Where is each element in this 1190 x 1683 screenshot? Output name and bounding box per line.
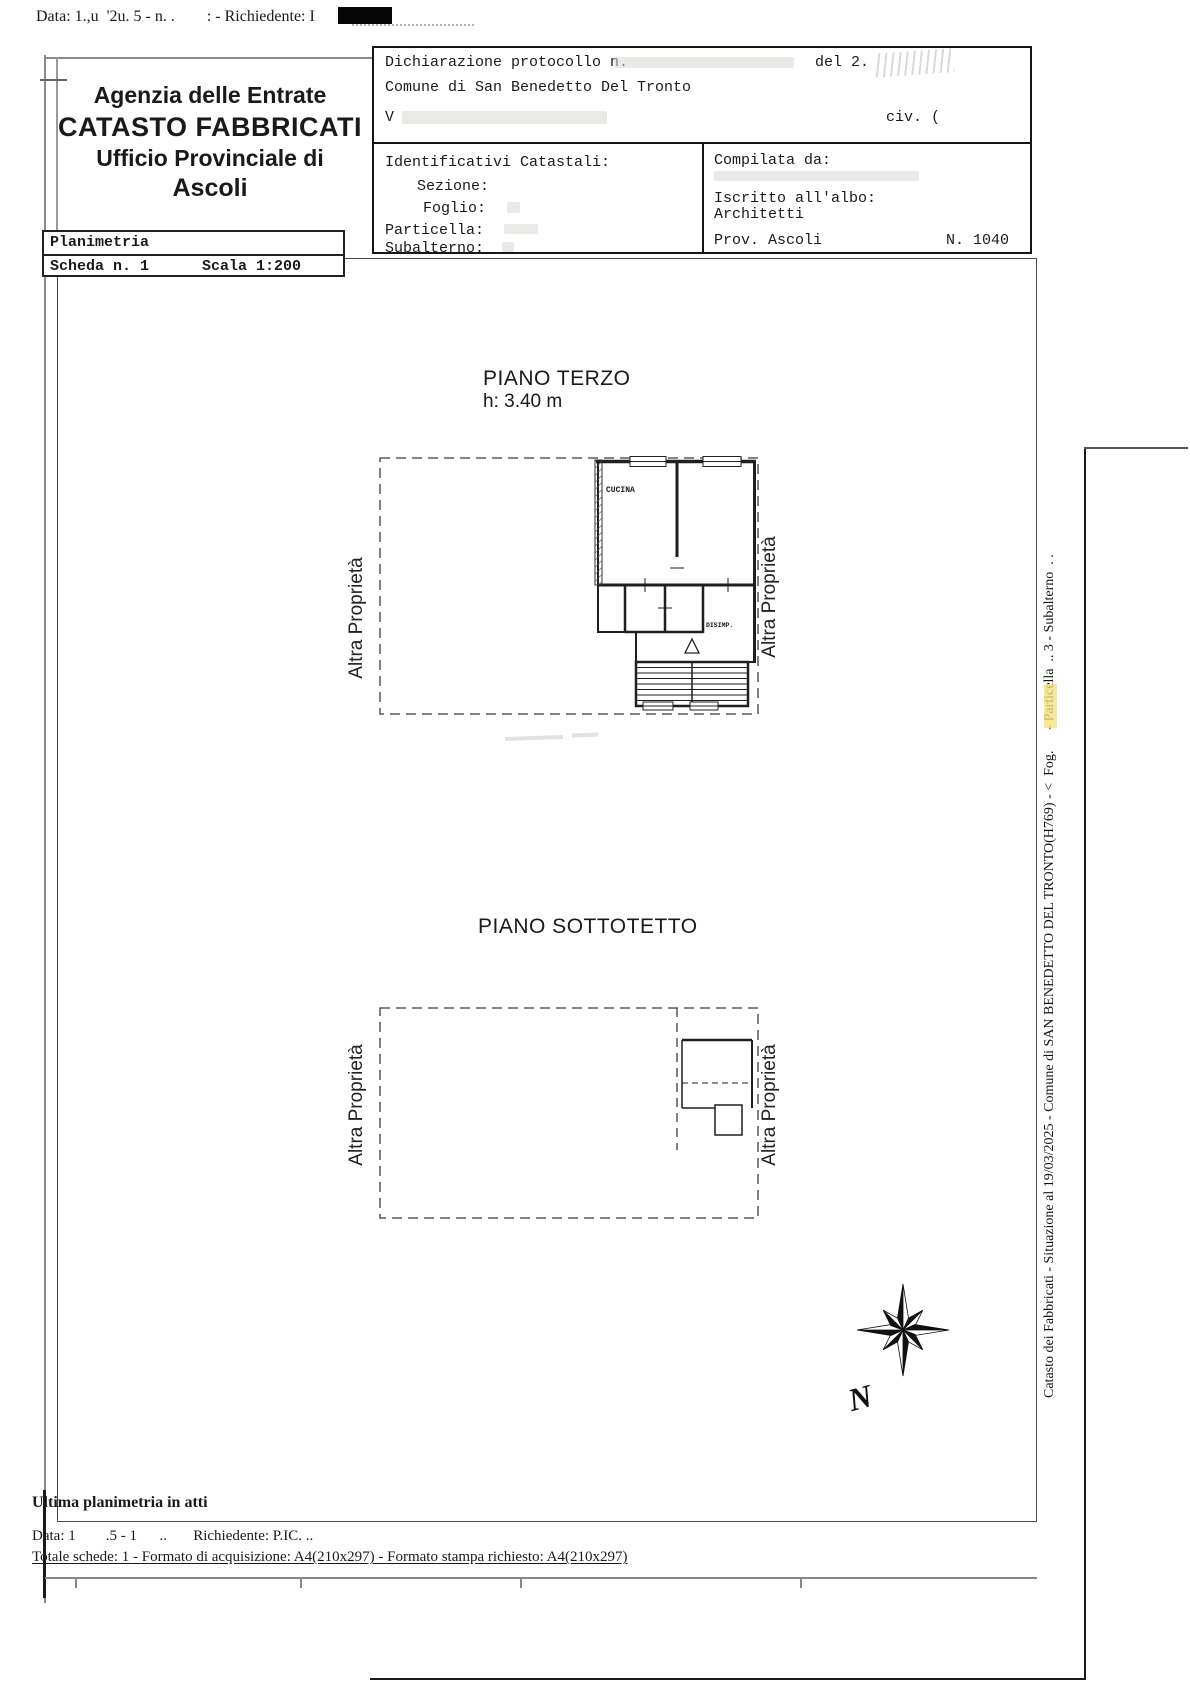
piano-terzo-title: PIANO TERZO — [483, 367, 630, 391]
redaction-particella — [504, 224, 538, 234]
agency-office-title: CATASTO FABBRICATI — [55, 112, 365, 143]
identificativi-box: Identificativi Catastali: Sezione: Fogli… — [372, 142, 1032, 254]
agency-office-sub: Ufficio Provinciale di — [60, 145, 360, 172]
albo-label: Iscritto all'albo: — [714, 190, 876, 207]
footer-data-line: Data: 1 .5 - 1 .. Richiedente: P.IC. .. — [32, 1528, 313, 1545]
particella-label: Particella: — [385, 222, 484, 239]
compass-star — [857, 1284, 949, 1376]
right-border-line — [1084, 447, 1086, 1680]
scheda-label: Scheda n. 1 — [50, 258, 149, 275]
piano-sottotetto-title: PIANO SOTTOTETTO — [478, 915, 698, 939]
floor-plan-piano-terzo: CUCINA DISIMP. — [340, 440, 790, 760]
comune-line: Comune di San Benedetto Del Tronto — [385, 79, 691, 96]
protocol-box: Dichiarazione protocollo n. del 2. Comun… — [372, 46, 1032, 142]
bottom-border-line — [370, 1678, 1086, 1680]
redaction-street — [402, 111, 607, 124]
redaction-tecnico — [714, 171, 919, 181]
civico-label: civ. ( — [886, 109, 940, 126]
registration-tick — [40, 79, 67, 81]
footer-tick-2 — [300, 1578, 302, 1588]
redaction-protocol-number — [614, 57, 794, 68]
room-label-cucina: CUCINA — [606, 486, 635, 495]
sidebar-cadastral-caption: Catasto dei Fabbricati - Situazione al 1… — [1042, 450, 1058, 1398]
staircase — [636, 662, 748, 706]
identificativi-divider — [702, 144, 704, 252]
ultima-planimetria-note: Ultima planimetria in atti — [32, 1494, 208, 1512]
redaction-subalterno — [502, 242, 514, 252]
top-right-line — [1084, 447, 1188, 449]
scala-label: Scala 1:200 — [202, 258, 301, 275]
prov-label: Prov. Ascoli — [714, 232, 822, 249]
street-line: V — [385, 109, 394, 126]
planimetria-label: Planimetria — [50, 234, 149, 251]
attic-room-walls — [682, 1040, 752, 1135]
footer-tick-1 — [75, 1578, 77, 1588]
redaction-black-box — [338, 7, 392, 24]
identificativi-title: Identificativi Catastali: — [385, 154, 610, 171]
footer-tick-3 — [520, 1578, 522, 1588]
redaction-foglio — [507, 202, 520, 213]
planimetria-box: Planimetria Scheda n. 1 Scala 1:200 — [42, 230, 345, 277]
compilata-label: Compilata da: — [714, 152, 831, 169]
redaction-date-scribble — [873, 48, 954, 78]
protocol-date-label: del 2. — [815, 54, 869, 71]
floor-plan-piano-sottotetto — [340, 990, 790, 1230]
frame-left-line — [44, 55, 46, 1603]
sezione-label: Sezione: — [417, 178, 489, 195]
agency-province: Ascoli — [60, 174, 360, 203]
footer-rule — [45, 1577, 1037, 1579]
albo-value: Architetti — [714, 206, 804, 223]
top-data-line: Data: 1.,u '2u. 5 - n. . : - Richiedente… — [36, 8, 315, 26]
frame-top-left-line — [45, 57, 372, 59]
albo-number: N. 1040 — [946, 232, 1009, 249]
foglio-label: Foglio: — [423, 200, 486, 217]
totale-schede-line: Totale schede: 1 - Formato di acquisizio… — [32, 1549, 628, 1566]
agency-name: Agenzia delle Entrate — [60, 82, 360, 109]
highlight-mark — [1044, 684, 1057, 728]
room-label-disimp: DISIMP. — [706, 622, 733, 629]
north-label: N — [843, 1377, 877, 1418]
piano-terzo-height: h: 3.40 m — [483, 391, 562, 413]
compass-rose: N — [843, 1268, 967, 1418]
planimetria-divider — [44, 254, 343, 256]
redaction-dotted-line — [352, 24, 474, 26]
footer-tick-4 — [800, 1578, 802, 1588]
subalterno-label: Subalterno: — [385, 240, 484, 257]
scanned-cadastral-document: Data: 1.,u '2u. 5 - n. . : - Richiedente… — [0, 0, 1190, 1683]
protocol-line: Dichiarazione protocollo n. — [385, 54, 628, 71]
triangle-symbol — [685, 639, 699, 653]
hatched-shared-wall — [595, 460, 602, 585]
